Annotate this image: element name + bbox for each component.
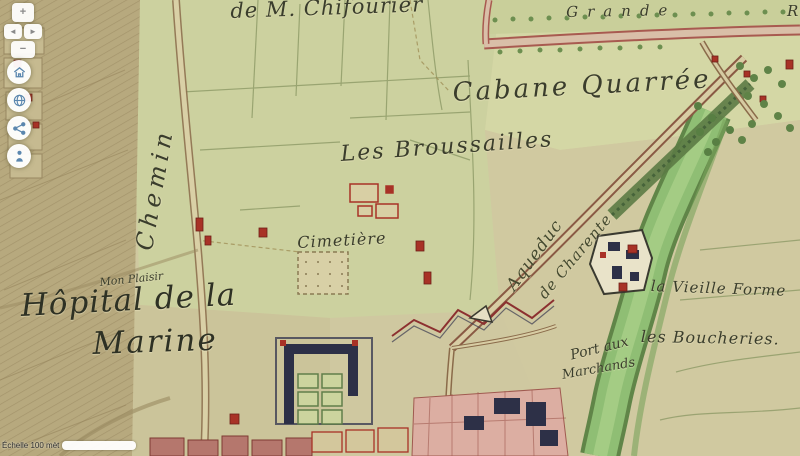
pan-zoom-control: + ◄ ► −	[3, 3, 43, 58]
scale-label: Échelle 100 mèt	[2, 441, 59, 450]
share-button[interactable]	[7, 116, 31, 140]
map-viewport[interactable]: de M. ChifourierGrandeRCabane QuarréeLes…	[0, 0, 800, 456]
share-icon	[12, 121, 27, 136]
zoom-out-button[interactable]: −	[11, 41, 35, 58]
globe-button[interactable]	[7, 88, 31, 112]
home-icon	[12, 65, 27, 80]
historical-map-artwork	[0, 0, 800, 456]
globe-icon	[12, 93, 27, 108]
cemetery	[298, 252, 348, 294]
pan-right-button[interactable]: ►	[24, 24, 42, 39]
scale-rule	[62, 441, 136, 450]
zoom-in-button[interactable]: +	[12, 3, 34, 22]
scale-bar: Échelle 100 mèt	[2, 441, 136, 450]
pan-left-button[interactable]: ◄	[4, 24, 22, 39]
locate-button[interactable]	[7, 144, 31, 168]
person-locate-icon	[12, 149, 27, 164]
home-button[interactable]	[7, 60, 31, 84]
